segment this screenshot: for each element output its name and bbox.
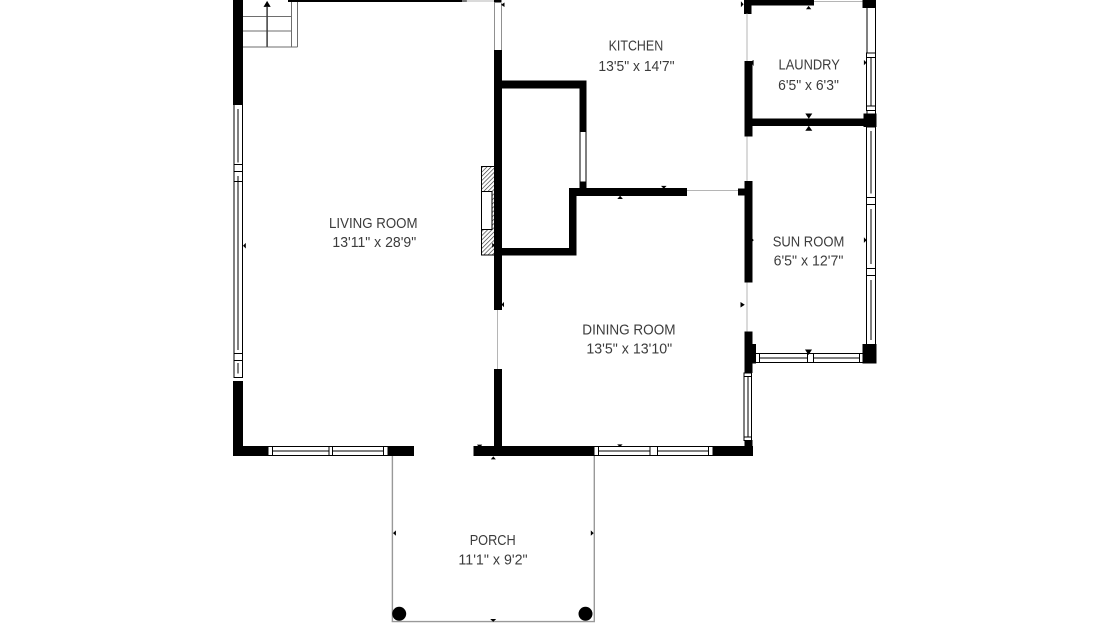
svg-text:11'1" x 9'2": 11'1" x 9'2"	[458, 552, 527, 568]
svg-text:LIVING ROOM: LIVING ROOM	[329, 216, 418, 232]
svg-text:PORCH: PORCH	[470, 533, 516, 549]
svg-text:13'5" x 13'10": 13'5" x 13'10"	[586, 341, 672, 357]
svg-text:LAUNDRY: LAUNDRY	[779, 58, 841, 74]
svg-text:KITCHEN: KITCHEN	[609, 39, 664, 55]
svg-text:SUN ROOM: SUN ROOM	[773, 235, 845, 251]
svg-text:6'5" x 6'3": 6'5" x 6'3"	[778, 78, 839, 94]
svg-text:13'5" x 14'7": 13'5" x 14'7"	[598, 59, 674, 75]
svg-text:6'5" x 12'7": 6'5" x 12'7"	[774, 253, 844, 269]
svg-text:13'11" x 28'9": 13'11" x 28'9"	[332, 235, 416, 251]
svg-text:DINING ROOM: DINING ROOM	[582, 322, 675, 338]
